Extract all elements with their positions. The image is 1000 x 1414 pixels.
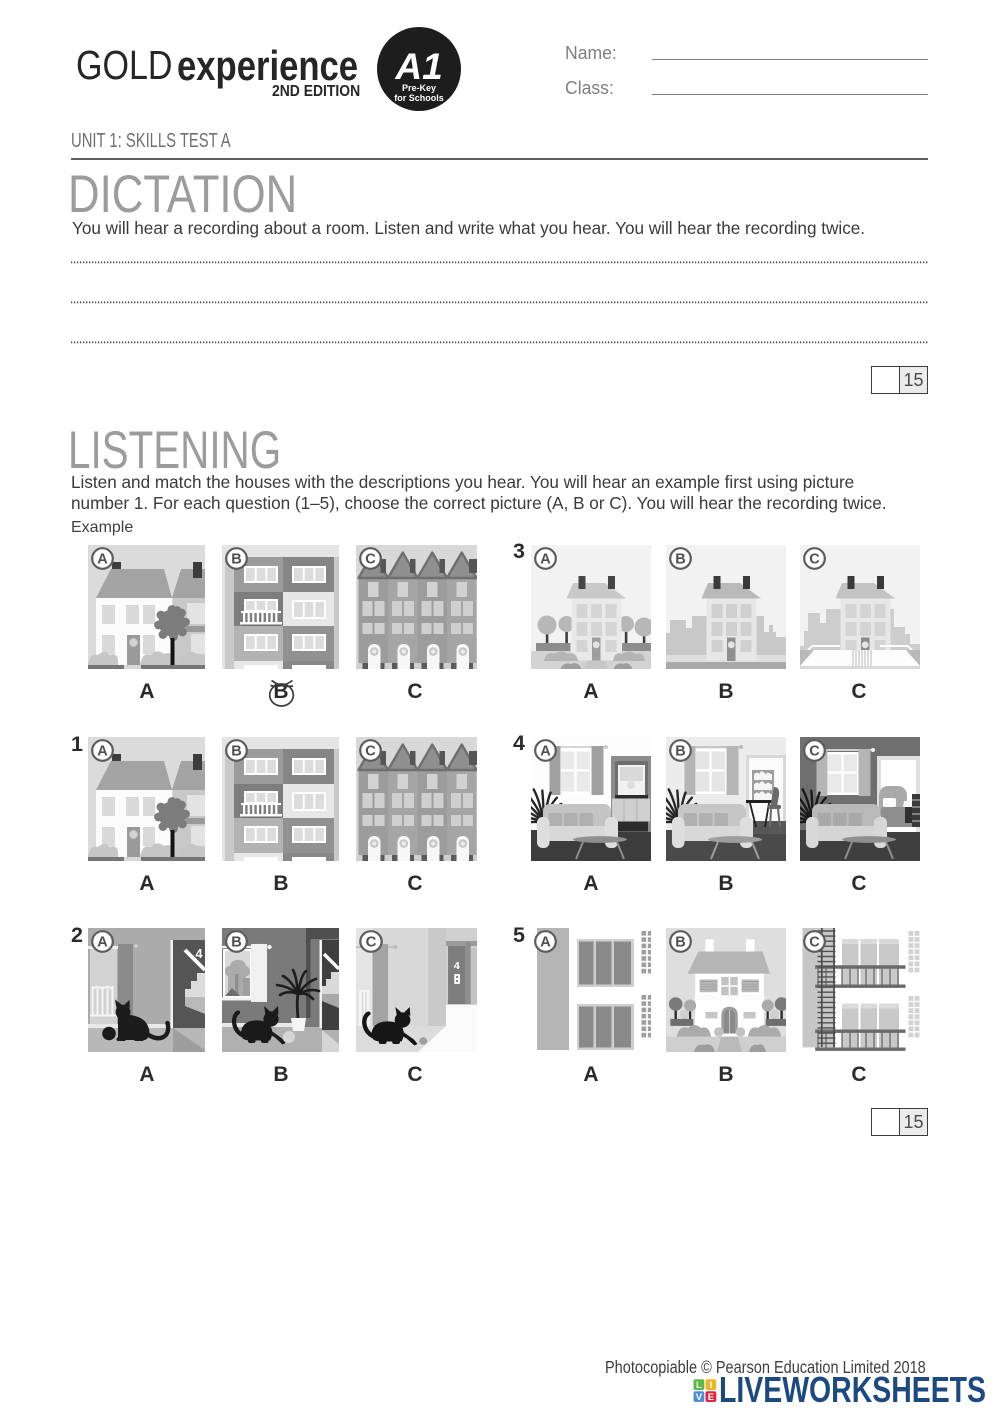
svg-text:LIVEWORKSHEETS: LIVEWORKSHEETS: [719, 1376, 986, 1406]
svg-text:V: V: [696, 1392, 703, 1403]
svg-text:E: E: [708, 1392, 714, 1403]
svg-text:I: I: [710, 1380, 713, 1391]
svg-text:L: L: [696, 1380, 702, 1391]
svg-text:Pre-Key: Pre-Key: [402, 83, 436, 93]
svg-text:for Schools: for Schools: [394, 93, 444, 103]
svg-text:A1: A1: [394, 46, 442, 87]
